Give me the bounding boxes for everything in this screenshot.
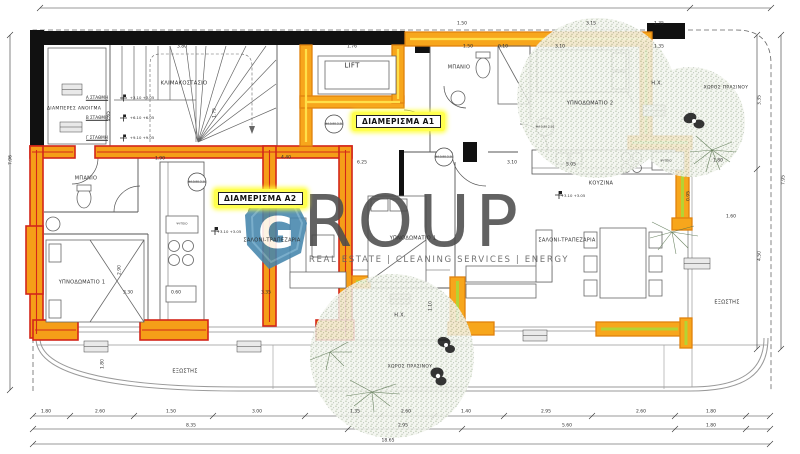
dim-label: 18.65 [382,440,395,445]
apartment-tag-a1: ΔΙΑΜΕΡΙΣΜΑ Α1 [352,112,445,131]
dim-label: 2.95 [541,411,551,416]
dim-label: 1.60 [726,216,736,221]
dim-label: 3.35 [261,292,271,297]
stair-level-a-elevation: +3.10 +3.05 [130,96,154,100]
dim-label: 0.95 [688,191,693,201]
dim-label: 3.35 [759,95,764,105]
floor-elevation-a2: +3.10 +3.05 [217,230,241,234]
room-label-kitchen: ΚΟΥΖΙΝΑ [589,181,613,186]
room-label-bedroom2-a1: ΥΠΝΟΔΩΜΑΤΙΟ 2 [567,101,614,106]
room-label-hx-top: Η.Χ. [651,81,663,86]
room-label-living-a1: ΣΑΛΟΝΙ-ΤΡΑΠΕΖΑΡΙΑ [538,238,595,243]
room-label-bedroom1-a1: ΥΠΝΟΔΩΜΑΤΙΟ 1 [390,236,437,241]
door-tag: Φ4 0.90 2.10 [188,181,206,184]
dim-label: 1.80 [41,411,51,416]
dim-label: 1.80 [706,411,716,416]
room-label-bedroom1-a2: ΥΠΝΟΔΩΜΑΤΙΟ 1 [59,280,106,285]
dim-label: 1.80 [102,359,107,369]
dim-label: 2.60 [95,411,105,416]
dim-label: 3.10 [555,46,565,51]
stair-level-a: Α ΣΤΑΘΜΗ [86,96,108,100]
green-area-label-top: ΧΩΡΟΣ ΠΡΑΣΙΝΟΥ [704,87,749,92]
door-tag: Φ4 0.90 2.10 [325,123,343,126]
fridge-label-a2: ΨΥΓΕΙΟ [176,222,187,225]
dim-label: 2.65 [108,111,113,121]
dim-label: 2.60 [401,411,411,416]
dim-label: 1.50 [166,411,176,416]
dim-label: 1.35 [350,411,360,416]
dim-label: 2.95 [398,425,408,430]
dim-label: 0.60 [171,292,181,297]
floor-elevation-a1: +3.10 +3.05 [561,194,585,198]
door-tag: Φ4 0.90 2.10 [536,126,554,129]
room-label-bathroom-a2: ΜΠΑΝΙΟ [75,176,97,181]
dim-label: 1.80 [713,160,723,165]
room-label-through-opening: ΔΙΑΜΠΕΡΕΣ ΑΝΟΙΓΜΑ [47,108,101,113]
fridge-label-a1: ΨΥΓΕΙΟ [660,159,671,162]
room-label-bathroom-a1: ΜΠΑΝΙΟ [448,65,470,70]
room-label-lift: LIFT [344,62,359,69]
dim-label: 1.76 [347,46,357,51]
dim-label: 6.25 [357,162,367,167]
dim-label: 1.40 [461,411,471,416]
stair-level-c: Γ ΣΤΑΘΜΗ [86,136,108,140]
dim-label: 1.35 [654,46,664,51]
stair-level-b-elevation: +6.10 +6.05 [130,116,154,120]
dim-label: 5.60 [562,425,572,430]
apartment-tag-a2: ΔΙΑΜΕΡΙΣΜΑ Α2 [214,189,307,208]
room-label-living-a2: ΣΑΛΟΝΙ-ΤΡΑΠΕΖΑΡΙΑ [243,238,300,243]
dim-label: 2.60 [636,411,646,416]
floor-plan-drawing [0,0,800,454]
dim-label: 3.10 [507,162,517,167]
door-tag: Φ4 0.90 2.10 [435,156,453,159]
room-label-staircase: ΚΛΙΜΑΚΟΣΤΑΣΙΟ [161,81,208,86]
dim-label: 7.96 [10,155,15,165]
dim-label: 8.35 [186,425,196,430]
dim-label: 4.50 [759,251,764,261]
apartment-tag-a1-label: ΔΙΑΜΕΡΙΣΜΑ Α1 [356,115,441,128]
dim-label: 3.80 [177,46,187,51]
stair-level-b: Β ΣΤΑΘΜΗ [86,116,108,120]
dim-label: 1.10 [430,301,435,311]
dim-label: 1.75 [214,108,219,118]
stair-level-c-elevation: +9.10 +9.05 [130,136,154,140]
dim-label: 7.95 [783,175,788,185]
room-label-hx-bottom: Η.Χ. [394,313,406,318]
dim-label: 3.15 [586,23,596,28]
apartment-tag-a2-label: ΔΙΑΜΕΡΙΣΜΑ Α2 [218,192,303,205]
green-area-label-bottom: ΧΩΡΟΣ ΠΡΑΣΙΝΟΥ [388,366,433,371]
dim-label: 2.90 [119,265,124,275]
room-label-balcony-right: ΕΞΩΣΤΗΣ [714,300,739,305]
room-label-balcony-left: ΕΞΩΣΤΗΣ [172,369,197,374]
floor-plan-canvas: G GROUP REAL ESTATE | CLEANING SERVICES … [0,0,800,454]
dim-label: 1.80 [706,425,716,430]
dim-label: 1.50 [457,23,467,28]
dim-label: 1.90 [155,158,165,163]
dim-label: 5.05 [566,164,576,169]
dim-label: 3.30 [123,292,133,297]
dim-label: 1.50 [463,46,473,51]
staircase [114,46,276,142]
dim-label: 1.35 [654,23,664,28]
dim-label: 0.10 [498,46,508,51]
dim-label: 3.00 [252,411,262,416]
dim-label: 4.40 [281,157,291,162]
